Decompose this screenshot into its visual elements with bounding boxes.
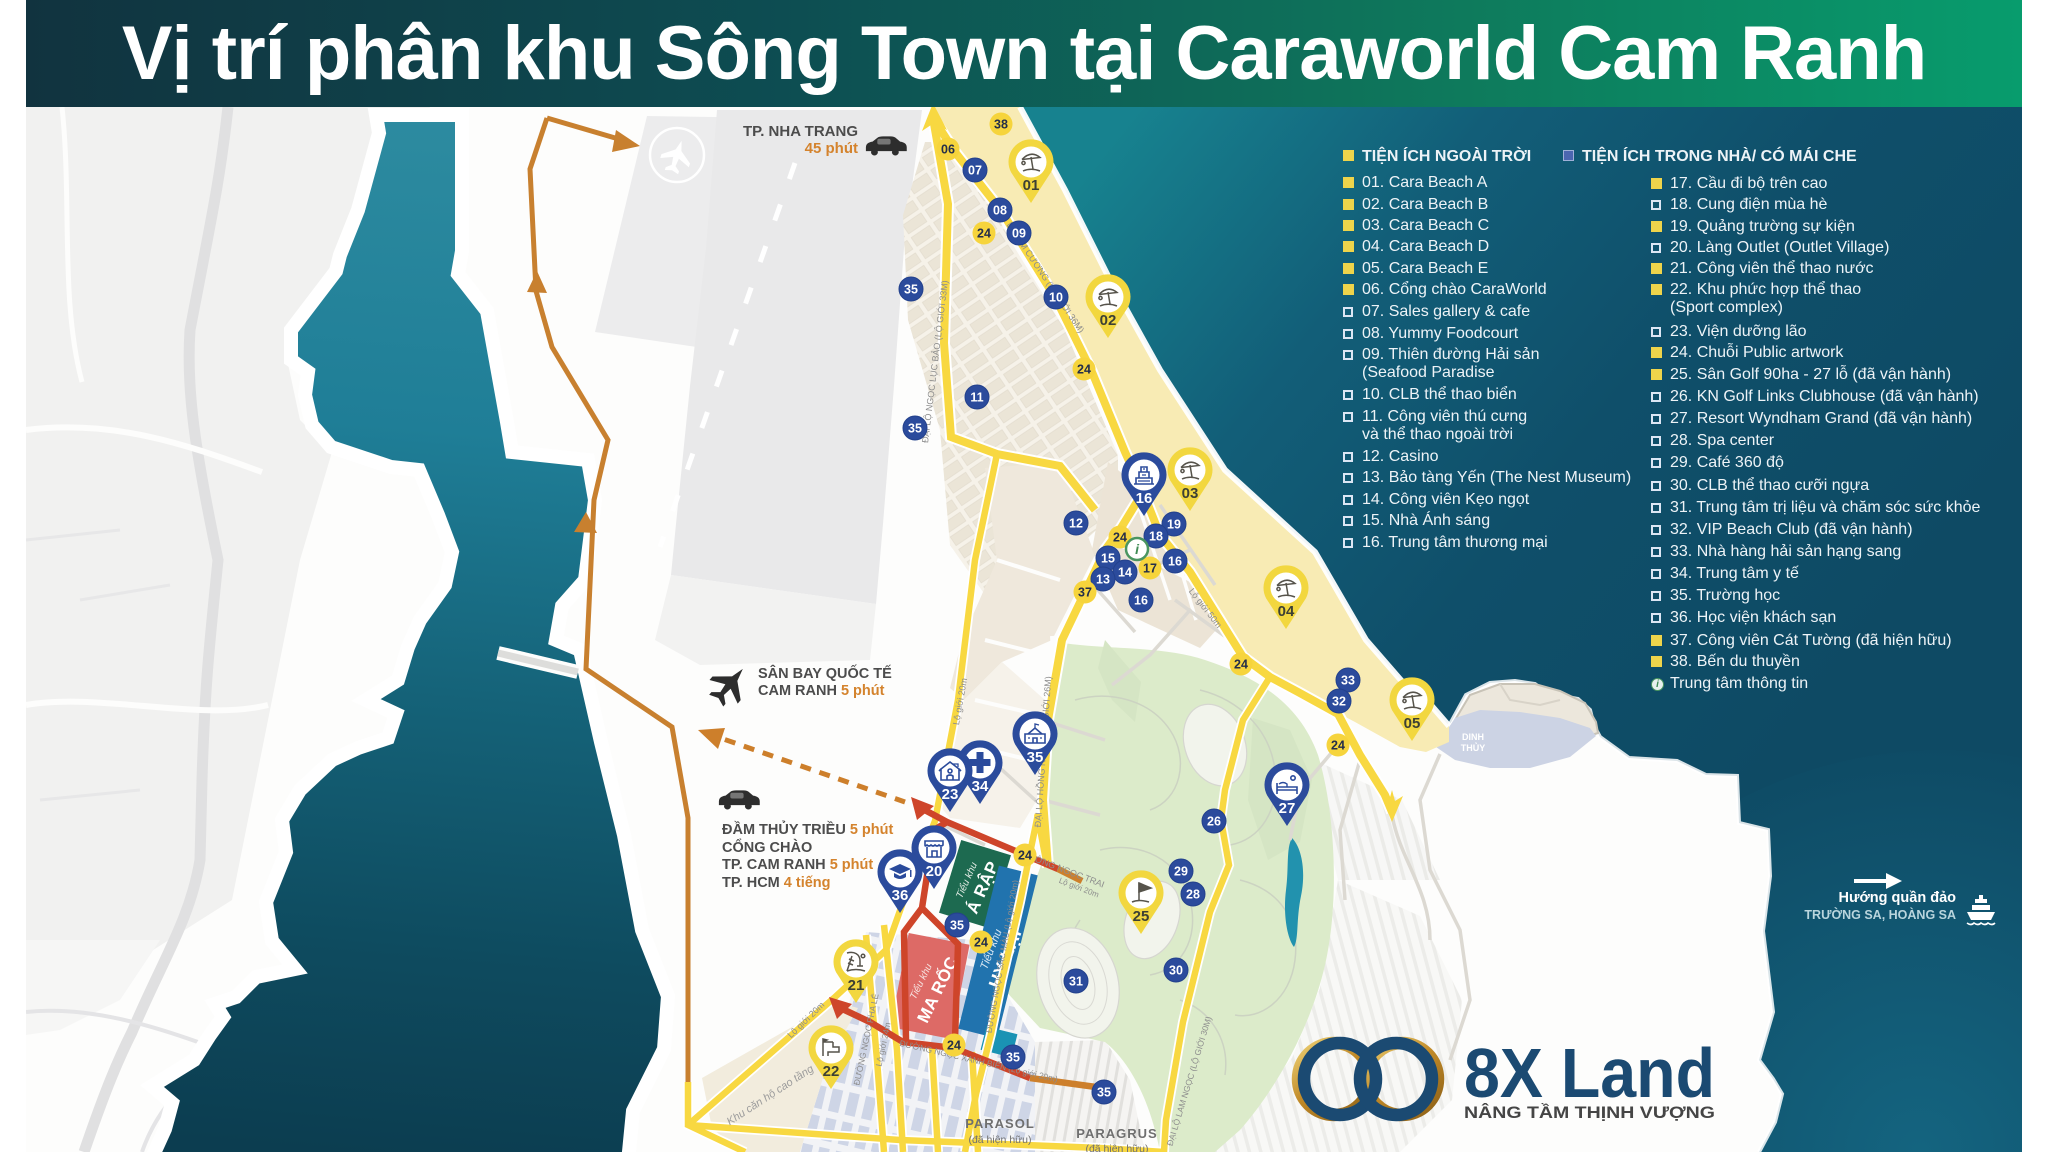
svg-text:30: 30	[1169, 964, 1183, 978]
svg-text:THỦY: THỦY	[1461, 742, 1486, 753]
svg-text:24: 24	[1234, 658, 1248, 672]
svg-text:04: 04	[1278, 603, 1295, 620]
svg-text:29: 29	[1174, 865, 1188, 879]
svg-text:8X Land: 8X Land	[1464, 1034, 1715, 1112]
svg-text:07: 07	[968, 164, 982, 178]
svg-text:24: 24	[1018, 849, 1032, 863]
svg-text:06: 06	[941, 143, 955, 157]
svg-text:24: 24	[1331, 739, 1345, 753]
svg-text:24: 24	[1113, 531, 1127, 545]
svg-text:10: 10	[1049, 291, 1063, 305]
svg-text:23: 23	[942, 786, 959, 803]
svg-text:(đã hiện hữu): (đã hiện hữu)	[1085, 1143, 1148, 1152]
svg-text:21: 21	[848, 977, 865, 994]
svg-text:NÂNG TẦM THỊNH VƯỢNG: NÂNG TẦM THỊNH VƯỢNG	[1464, 1103, 1715, 1122]
svg-text:28: 28	[1186, 888, 1200, 902]
svg-text:34: 34	[972, 778, 989, 795]
svg-text:24: 24	[1077, 363, 1091, 377]
svg-text:38: 38	[994, 118, 1008, 132]
svg-text:35: 35	[1097, 1086, 1111, 1100]
svg-text:18: 18	[1149, 530, 1163, 544]
svg-text:24: 24	[977, 227, 991, 241]
svg-text:31: 31	[1069, 975, 1083, 989]
svg-text:37: 37	[1078, 586, 1092, 600]
svg-text:24: 24	[947, 1039, 961, 1053]
svg-text:16: 16	[1134, 594, 1148, 608]
svg-text:12: 12	[1069, 517, 1083, 531]
svg-text:15: 15	[1101, 552, 1115, 566]
svg-text:DINH: DINH	[1462, 732, 1484, 742]
svg-text:35: 35	[950, 919, 964, 933]
svg-text:36: 36	[892, 887, 909, 904]
svg-text:09: 09	[1012, 227, 1026, 241]
svg-text:20: 20	[926, 863, 943, 880]
svg-text:17: 17	[1143, 562, 1157, 576]
svg-text:32: 32	[1332, 695, 1346, 709]
svg-text:16: 16	[1168, 555, 1182, 569]
svg-text:33: 33	[1341, 674, 1355, 688]
svg-text:03: 03	[1182, 485, 1199, 502]
svg-text:35: 35	[904, 283, 918, 297]
svg-text:14: 14	[1118, 566, 1132, 580]
svg-text:25: 25	[1133, 908, 1150, 925]
svg-text:11: 11	[970, 391, 983, 405]
svg-text:35: 35	[1027, 749, 1044, 766]
svg-text:01: 01	[1023, 177, 1040, 194]
svg-text:26: 26	[1207, 815, 1221, 829]
svg-text:(đã hiện hữu): (đã hiện hữu)	[968, 1134, 1031, 1146]
svg-text:24: 24	[974, 936, 988, 950]
svg-text:PARASOL: PARASOL	[965, 1116, 1035, 1131]
svg-text:05: 05	[1404, 715, 1421, 732]
svg-text:02: 02	[1100, 312, 1117, 329]
svg-text:22: 22	[823, 1063, 840, 1080]
svg-text:16: 16	[1136, 490, 1153, 507]
svg-text:35: 35	[1006, 1051, 1020, 1065]
svg-text:27: 27	[1279, 800, 1296, 817]
svg-text:13: 13	[1096, 573, 1110, 587]
svg-text:08: 08	[993, 204, 1007, 218]
svg-text:35: 35	[908, 422, 922, 436]
svg-text:PARAGRUS: PARAGRUS	[1076, 1126, 1157, 1141]
svg-text:19: 19	[1167, 518, 1181, 532]
